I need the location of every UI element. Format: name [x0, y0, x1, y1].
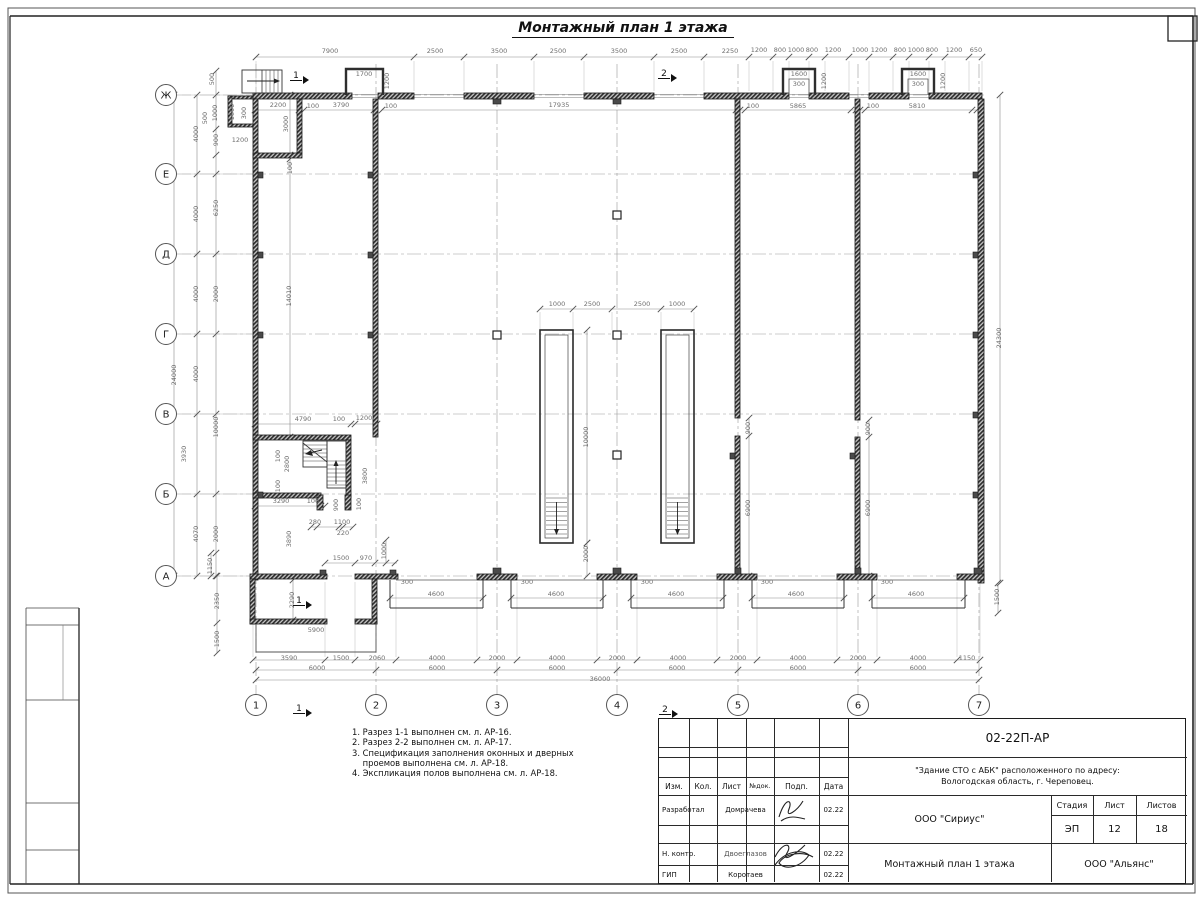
dim-label: 1200 — [356, 414, 373, 422]
dim-label: 4600 — [668, 590, 685, 598]
titleblock-object: "Здание СТО с АБК" расположенного по адр… — [848, 757, 1187, 795]
dim-label: 6000 — [910, 664, 927, 672]
note-line: 3. Спецификация заполнения оконных и две… — [352, 748, 574, 758]
titleblock-grid-line — [659, 825, 848, 826]
dim-label: 2000 — [609, 654, 626, 662]
dim-label: 14010 — [285, 286, 293, 307]
svg-text:2: 2 — [373, 701, 379, 712]
dim-label: 2500 — [671, 47, 688, 55]
dim-label: 4000 — [670, 654, 687, 662]
dim-label: 800 — [894, 46, 906, 54]
tb-header-data: Дата — [819, 777, 848, 795]
dim-label: 1200 — [946, 46, 963, 54]
dim-label: 2500 — [550, 47, 567, 55]
titleblock-sheets-value: 18 — [1136, 815, 1187, 843]
dim-label: 2060 — [369, 654, 386, 662]
tb-header-kol: Кол. — [689, 777, 717, 795]
titleblock-grid-line — [848, 719, 849, 882]
titleblock-stage-value: ЭП — [1051, 815, 1093, 843]
note-line: 1. Разрез 1-1 выполнен см. л. АР-16. — [352, 727, 574, 737]
dim-label: 24300 — [995, 328, 1003, 349]
dim-label: 1500 — [333, 654, 350, 662]
svg-text:А: А — [163, 572, 170, 583]
titleblock-grid-line — [1093, 795, 1094, 843]
tb-row1-date: 02.22 — [819, 795, 848, 825]
dim-label: 3000 — [282, 116, 290, 133]
titleblock-grid-line — [659, 865, 848, 866]
titleblock-company: ООО "Альянс" — [1051, 843, 1187, 885]
dim-label: 1000 — [211, 105, 219, 122]
dim-label: 24000 — [170, 365, 178, 386]
dim-label: 300 — [240, 107, 248, 119]
dim-label: 6000 — [429, 664, 446, 672]
drawing-title: Монтажный план 1 этажа — [488, 20, 758, 36]
dim-label: 2800 — [283, 456, 291, 473]
dim-label: 100 — [867, 102, 879, 110]
dim-label: 2000 — [212, 526, 220, 543]
dim-label: 6000 — [309, 664, 326, 672]
dim-label: 300 — [401, 578, 413, 586]
dim-label: 1500 — [993, 589, 1001, 606]
dim-label: 970 — [360, 554, 372, 562]
dim-label: 2000 — [850, 654, 867, 662]
dim-label: 5900 — [308, 626, 325, 634]
dim-label: 2200 — [270, 101, 287, 109]
dim-label: 300 — [793, 80, 805, 88]
section-marker: 1 — [296, 704, 302, 714]
dim-label: 1200 — [871, 46, 888, 54]
svg-text:Б: Б — [163, 490, 170, 501]
dim-label: 2500 — [584, 300, 601, 308]
drawing-sheet: { "sheet": { "drawing_title": "Монтажный… — [0, 0, 1200, 900]
note-line: 2. Разрез 2-2 выполнен см. л. АР-17. — [352, 737, 574, 747]
section-marker: 2 — [661, 69, 667, 79]
dim-label: 4600 — [908, 590, 925, 598]
dimension-chains — [171, 54, 1003, 683]
dim-label: 1000 — [788, 46, 805, 54]
dim-label: 2000 — [212, 286, 220, 303]
dim-label: 5810 — [909, 102, 926, 110]
dim-label: 2000 — [730, 654, 747, 662]
dim-label: 4000 — [549, 654, 566, 662]
titleblock-grid-line — [689, 719, 690, 882]
dim-label: 500 — [208, 73, 216, 85]
tb-row2-date: 02.22 — [819, 843, 848, 865]
titleblock-grid-line — [659, 777, 848, 778]
dim-label: 4070 — [192, 526, 200, 543]
dim-label: 1000 — [669, 300, 686, 308]
dim-label: 10000 — [212, 417, 220, 438]
dim-label: 100 — [333, 415, 345, 423]
dimension-labels: 7900250035002500350025002250120080010008… — [170, 46, 1003, 683]
titleblock-grid-line — [717, 719, 718, 882]
tb-header-izm: Изм. — [659, 777, 689, 795]
svg-text:5: 5 — [735, 701, 741, 712]
dim-label: 3290 — [273, 497, 290, 505]
dim-label: 2500 — [427, 47, 444, 55]
dim-label: 3790 — [333, 101, 350, 109]
dim-label: 4790 — [295, 415, 312, 423]
svg-text:Г: Г — [163, 330, 169, 341]
signature-icon — [771, 791, 821, 885]
titleblock-grid-line — [659, 747, 848, 748]
titleblock-grid-line — [659, 795, 1187, 796]
svg-text:6: 6 — [855, 701, 861, 712]
dim-label: 4600 — [428, 590, 445, 598]
dim-label: 6900 — [864, 500, 872, 517]
titleblock-sheet-title: Монтажный план 1 этажа — [848, 843, 1051, 885]
titleblock-sheet-value: 12 — [1093, 815, 1136, 843]
dim-label: 1200 — [383, 73, 391, 90]
dim-label: 4000 — [910, 654, 927, 662]
dim-label: 1200 — [820, 73, 828, 90]
dim-label: 280 — [309, 518, 321, 526]
dim-label: 100 — [385, 102, 397, 110]
dim-label: 4000 — [192, 286, 200, 303]
titleblock-stage-label: Стадия — [1051, 795, 1093, 815]
dim-label: 300 — [521, 578, 533, 586]
titleblock-grid-line — [659, 843, 1187, 844]
dim-label: 1500 — [213, 631, 221, 648]
section-marker: 1 — [293, 71, 299, 81]
dim-label: 4000 — [429, 654, 446, 662]
tb-header-list: Лист — [717, 777, 746, 795]
dim-label: 1000 — [852, 46, 869, 54]
drawing-title-text: Монтажный план 1 этажа — [512, 20, 734, 38]
dim-label: 900 — [212, 134, 220, 146]
dim-label: 2500 — [634, 300, 651, 308]
dim-label: 100 — [307, 497, 319, 505]
dim-label: 4600 — [788, 590, 805, 598]
dim-label: 5865 — [790, 102, 807, 110]
svg-text:4: 4 — [614, 701, 620, 712]
dim-label: 100 — [274, 480, 282, 492]
dim-label: 100 — [307, 102, 319, 110]
dim-label: 1000 — [908, 46, 925, 54]
dim-label: 900 — [864, 423, 872, 435]
dim-label: 1600 — [228, 104, 236, 121]
dim-label: 1200 — [939, 73, 947, 90]
dim-label: 3930 — [180, 446, 188, 463]
object-line-2: Вологодская область, г. Череповец. — [941, 776, 1094, 787]
dim-label: 1200 — [232, 136, 249, 144]
dim-label: 300 — [912, 80, 924, 88]
notes-block: 1. Разрез 1-1 выполнен см. л. АР-16.2. Р… — [352, 727, 574, 778]
section-markers: 12112 — [290, 69, 678, 718]
titleblock-grid-line — [1051, 795, 1052, 882]
dim-label: 1150 — [206, 558, 214, 575]
dim-label: 3500 — [491, 47, 508, 55]
note-line: проемов выполнена см. л. АР-18. — [352, 758, 574, 768]
dim-label: 1600 — [791, 70, 808, 78]
titleblock-grid-line — [1051, 815, 1187, 816]
dim-label: 3590 — [281, 654, 298, 662]
dim-label: 100 — [286, 162, 294, 174]
dim-label: 4000 — [192, 126, 200, 143]
dim-label: 1000 — [549, 300, 566, 308]
dim-label: 1200 — [825, 46, 842, 54]
dim-label: 100 — [355, 498, 363, 510]
dim-label: 4000 — [192, 206, 200, 223]
dim-label: 4000 — [790, 654, 807, 662]
titleblock-grid-line — [819, 719, 820, 882]
dim-label: 4600 — [548, 590, 565, 598]
dim-label: 800 — [926, 46, 938, 54]
dim-label: 36000 — [590, 675, 611, 683]
dim-label: 4000 — [192, 366, 200, 383]
dim-label: 650 — [970, 46, 982, 54]
titleblock-grid-line — [746, 719, 747, 882]
dim-label: 1600 — [910, 70, 927, 78]
dim-label: 6000 — [790, 664, 807, 672]
object-line-1: "Здание СТО с АБК" расположенного по адр… — [915, 765, 1120, 776]
dim-label: 220 — [337, 529, 349, 537]
dim-label: 300 — [641, 578, 653, 586]
titleblock-doc-number: 02-22П-АР — [848, 719, 1187, 757]
dim-label: 10000 — [582, 427, 590, 448]
dim-label: 1000 — [380, 543, 388, 560]
dim-label: 300 — [881, 578, 893, 586]
svg-text:Е: Е — [163, 170, 169, 181]
dim-label: 1700 — [356, 70, 373, 78]
dim-label: 3800 — [361, 468, 369, 485]
dim-label: 300 — [761, 578, 773, 586]
section-marker: 2 — [662, 705, 668, 715]
svg-text:Д: Д — [162, 250, 170, 261]
titleblock-grid-line — [774, 719, 775, 882]
svg-text:7: 7 — [976, 701, 982, 712]
svg-text:3: 3 — [494, 701, 500, 712]
titleblock-grid-line — [659, 757, 1187, 758]
titleblock-sheet-label: Лист — [1093, 795, 1136, 815]
dim-label: 500 — [201, 112, 209, 124]
dim-label: 6900 — [744, 500, 752, 517]
note-line: 4. Экспликация полов выполнена см. л. АР… — [352, 768, 574, 778]
dim-label: 800 — [774, 46, 786, 54]
dim-label: 1200 — [751, 46, 768, 54]
title-block: 02-22П-АР "Здание СТО с АБК" расположенн… — [658, 718, 1186, 884]
dim-label: 100 — [747, 102, 759, 110]
svg-text:В: В — [163, 410, 170, 421]
dim-label: 100 — [274, 450, 282, 462]
titleblock-grid-line — [1136, 795, 1137, 843]
dim-label: 3890 — [285, 531, 293, 548]
titleblock-sheets-label: Листов — [1136, 795, 1187, 815]
dim-label: 1100 — [334, 518, 351, 526]
dim-label: 17935 — [549, 101, 570, 109]
dim-label: 2000 — [489, 654, 506, 662]
dim-label: 900 — [332, 499, 340, 511]
dim-label: 7900 — [322, 47, 339, 55]
dim-label: 3500 — [611, 47, 628, 55]
tb-header-ndoc: №док. — [746, 777, 774, 795]
dim-label: 6250 — [212, 200, 220, 217]
svg-text:Ж: Ж — [161, 91, 172, 102]
dim-label: 800 — [806, 46, 818, 54]
dim-label: 2250 — [722, 47, 739, 55]
dim-label: 1150 — [959, 654, 976, 662]
dim-label: 2000 — [582, 546, 590, 563]
section-marker: 1 — [296, 596, 302, 606]
dim-label: 6000 — [549, 664, 566, 672]
titleblock-org: ООО "Сириус" — [848, 795, 1051, 843]
dim-label: 2350 — [213, 593, 221, 610]
dim-label: 1500 — [333, 554, 350, 562]
dim-label: 900 — [744, 422, 752, 434]
walls — [228, 93, 984, 624]
svg-text:1: 1 — [253, 701, 259, 712]
tb-row3-date: 02.22 — [819, 865, 848, 885]
dim-label: 6000 — [669, 664, 686, 672]
